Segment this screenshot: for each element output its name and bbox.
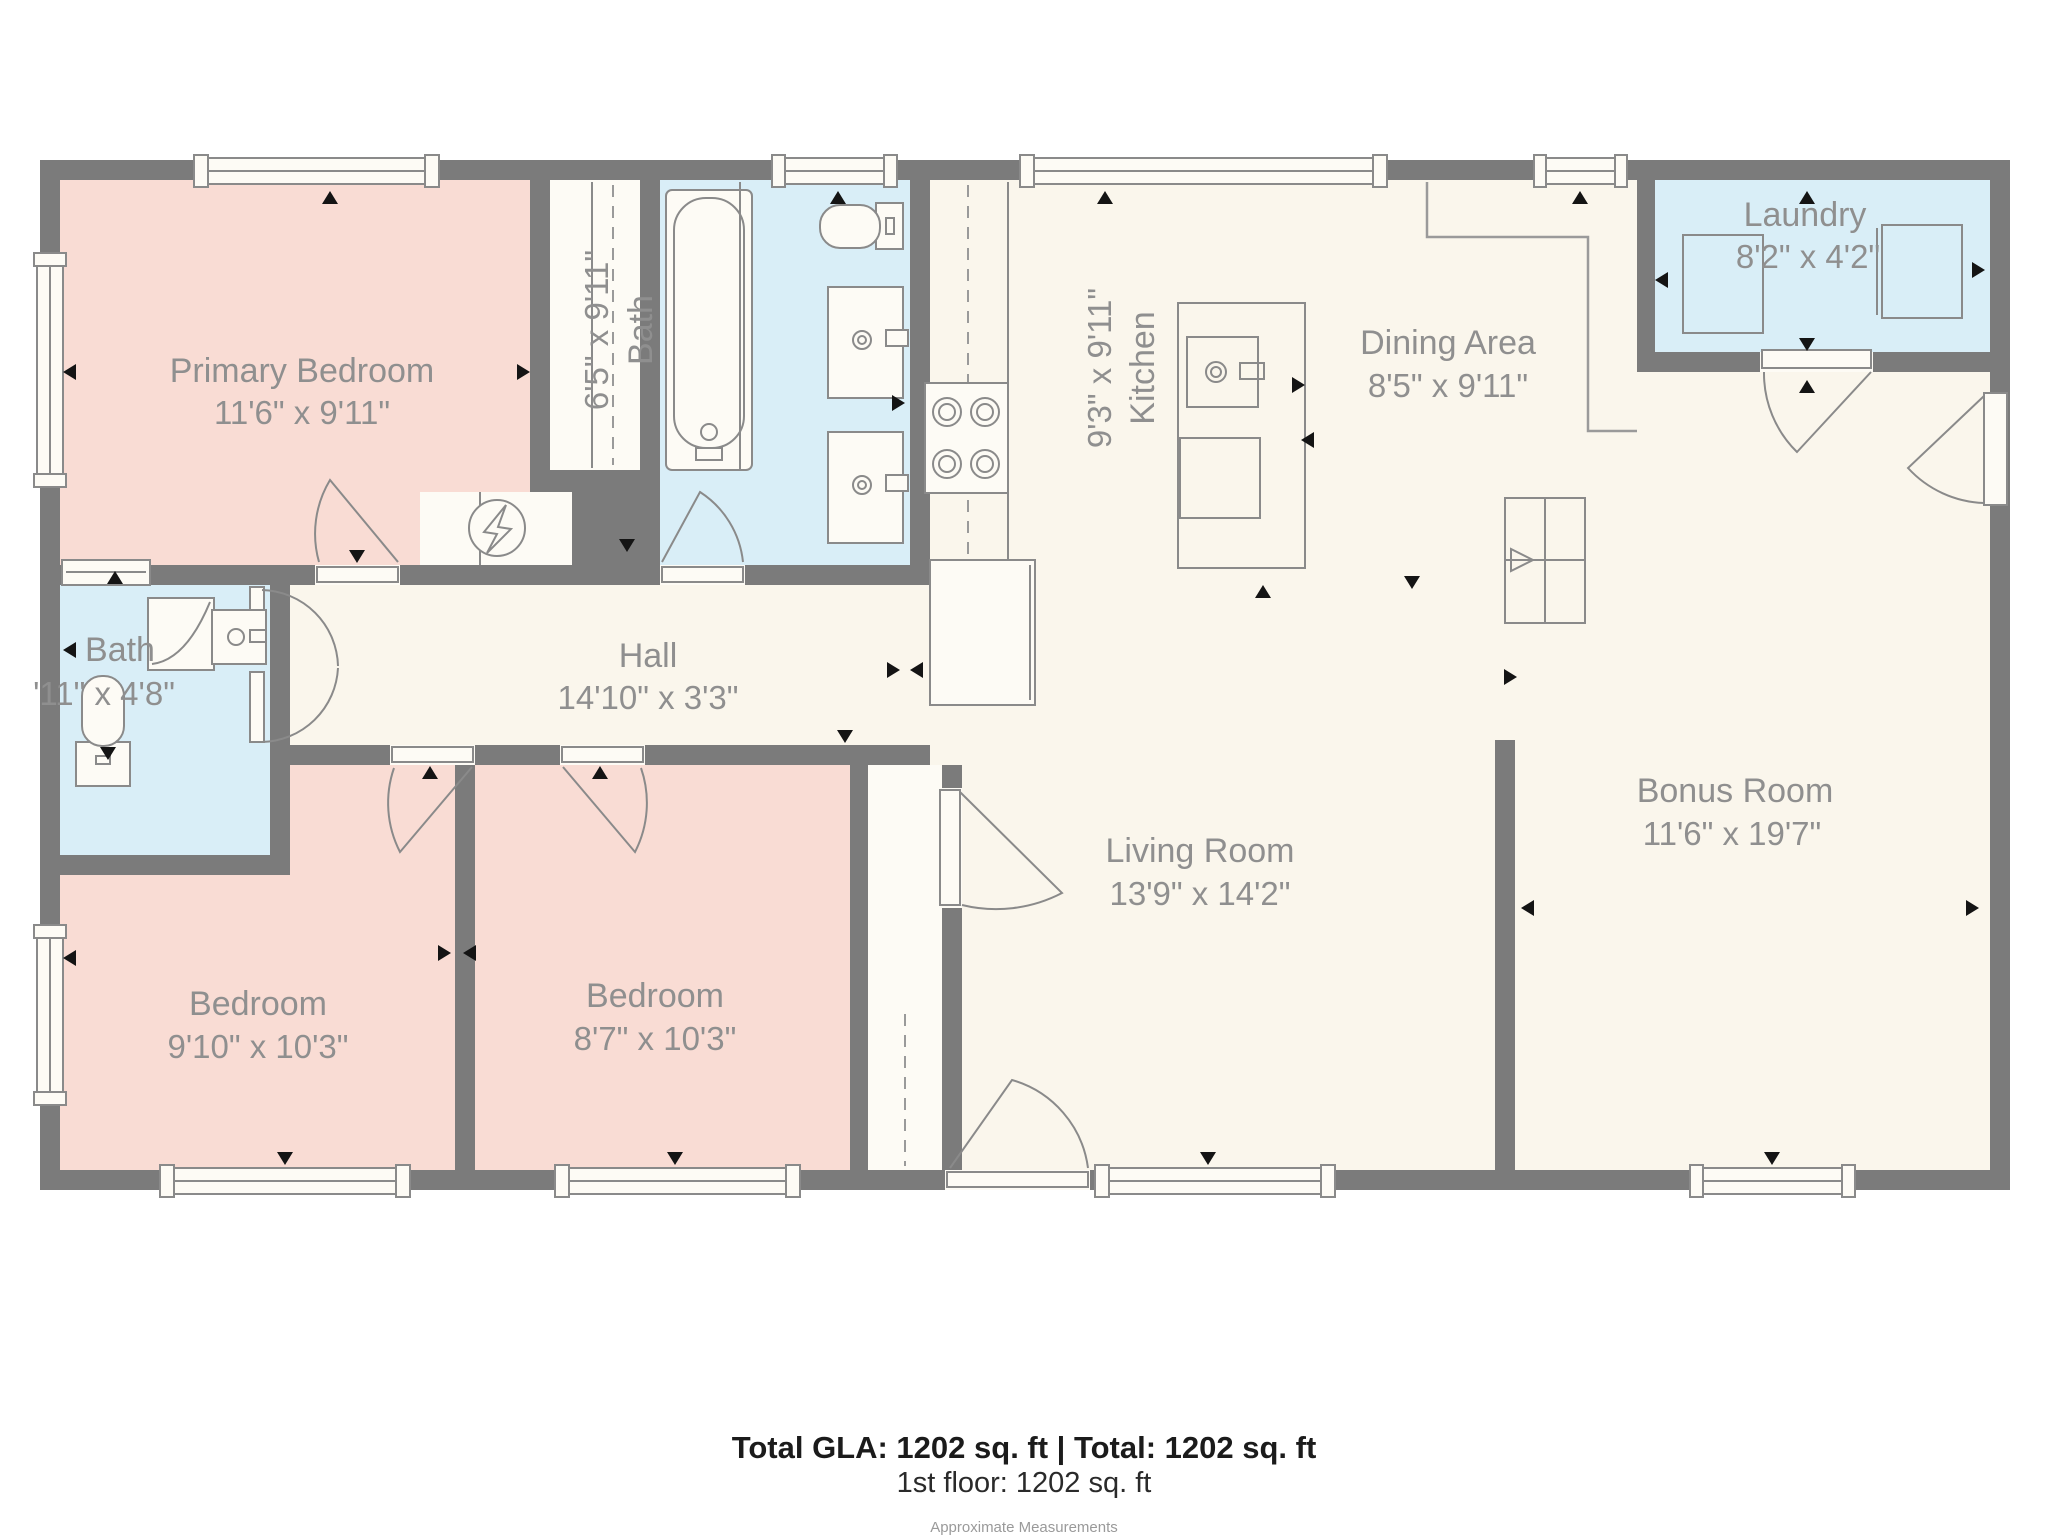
sink-icon xyxy=(828,287,908,398)
label-dining: Dining Area xyxy=(1360,324,1536,362)
window xyxy=(1095,1165,1335,1197)
dims-dining: 8'5" x 9'11" xyxy=(1368,367,1528,404)
window xyxy=(160,1165,410,1197)
window xyxy=(34,925,66,1105)
dims-living: 13'9" x 14'2" xyxy=(1110,875,1291,912)
dims-bedroom-left: 9'10" x 10'3" xyxy=(168,1028,349,1065)
dims-primary-bedroom: 11'6" x 9'11" xyxy=(214,394,390,431)
window xyxy=(194,155,439,187)
label-hall: Hall xyxy=(619,637,678,675)
label-bedroom-left: Bedroom xyxy=(189,985,327,1023)
toilet-icon xyxy=(820,203,903,249)
shower-icon xyxy=(148,598,214,670)
dims-bedroom-mid: 8'7" x 10'3" xyxy=(574,1020,737,1057)
label-kitchen: Kitchen xyxy=(1124,311,1162,424)
label-bath-left: Bath xyxy=(85,631,155,669)
label-laundry: Laundry xyxy=(1744,196,1867,234)
label-bedroom-mid: Bedroom xyxy=(586,977,724,1015)
footer: Total GLA: 1202 sq. ft | Total: 1202 sq.… xyxy=(732,1430,1317,1536)
window xyxy=(1534,155,1627,187)
dims-kitchen: 9'3" x 9'11" xyxy=(1081,288,1118,448)
footer-totals: Total GLA: 1202 sq. ft | Total: 1202 sq.… xyxy=(732,1430,1317,1465)
label-living: Living Room xyxy=(1106,832,1295,870)
label-bath-top: Bath xyxy=(622,295,660,365)
footer-floor-line: 1st floor: 1202 sq. ft xyxy=(897,1467,1152,1499)
dims-bath-left: '11" x 4'8" xyxy=(33,675,175,712)
window xyxy=(1690,1165,1855,1197)
dims-bath-top: 6'5" x 9'11" xyxy=(578,250,615,410)
bedroom-closet-floor xyxy=(868,765,942,1010)
label-primary-bedroom: Primary Bedroom xyxy=(170,352,435,390)
sink-icon xyxy=(828,432,908,543)
sink-icon xyxy=(212,610,266,664)
water-heater-icon xyxy=(469,500,525,556)
floor-plan-canvas: Primary Bedroom 11'6" x 9'11" Bath 6'5" … xyxy=(0,0,2048,1536)
window xyxy=(1020,155,1387,187)
bonus-partial-wall xyxy=(1495,740,1515,1170)
window xyxy=(772,155,897,187)
footer-disclaimer: Approximate Measurements xyxy=(930,1519,1118,1536)
window xyxy=(555,1165,800,1197)
room-bedroom-mid-floor xyxy=(475,765,850,1170)
stove-icon xyxy=(925,383,1008,493)
dims-bonus: 11'6" x 19'7" xyxy=(1643,815,1822,852)
label-bonus: Bonus Room xyxy=(1637,772,1834,810)
window xyxy=(34,253,66,487)
dims-hall: 14'10" x 3'3" xyxy=(558,679,739,716)
floor-plan-page: Primary Bedroom 11'6" x 9'11" Bath 6'5" … xyxy=(0,0,2048,1536)
dims-laundry: 8'2" x 4'2" xyxy=(1736,238,1880,275)
